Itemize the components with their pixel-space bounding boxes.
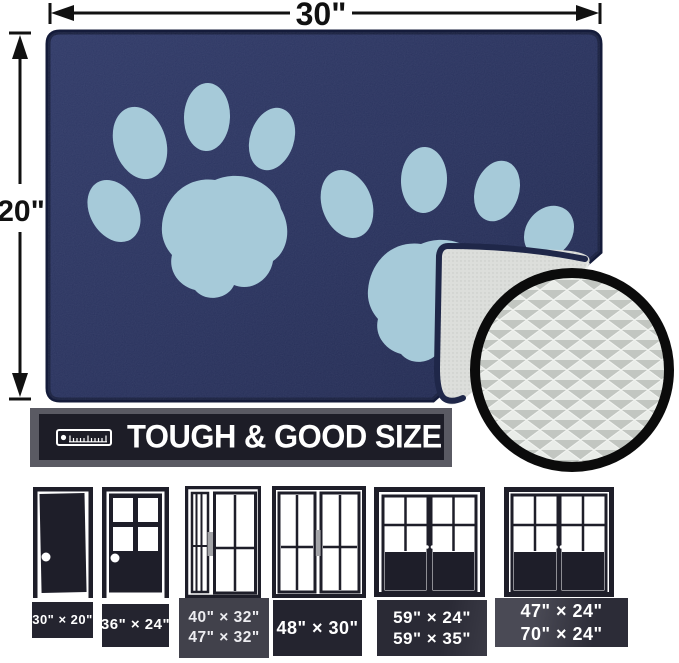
door-handle (208, 532, 214, 556)
size-line: 70" × 24" (520, 623, 602, 646)
door-knob (42, 553, 51, 562)
size-badge: 36" × 24" (102, 604, 169, 647)
size-line: 40" × 32" (188, 608, 259, 628)
sidelight-door-icon (185, 486, 261, 598)
arrowhead-left-icon (51, 5, 74, 21)
banner-title: TOUGH & GOOD SIZE (127, 418, 442, 456)
door-knob (425, 545, 429, 549)
width-label: 30" (296, 0, 347, 32)
product-size-infographic: 30" 20" (0, 0, 679, 663)
ruler-icon (56, 429, 112, 446)
size-line: 59" × 24" (393, 607, 471, 628)
backing-texture-magnifier (475, 273, 669, 467)
solid-door-icon (33, 487, 93, 598)
size-badge: 40" × 32" 47" × 32" (179, 598, 269, 658)
size-line: 30" × 20" (32, 612, 93, 628)
double-french-door-icon (374, 487, 485, 597)
size-badge: 30" × 20" (32, 602, 93, 638)
arrowhead-down-icon (12, 373, 28, 397)
size-line: 47" × 32" (188, 628, 259, 648)
banner-panel: TOUGH & GOOD SIZE (39, 414, 444, 460)
double-glass-door-icon (272, 486, 366, 598)
door-knob (554, 545, 558, 549)
size-badge: 48" × 30" (273, 600, 362, 656)
banner: TOUGH & GOOD SIZE (30, 408, 452, 467)
size-line: 47" × 24" (520, 600, 602, 623)
door-knob (111, 554, 120, 563)
height-label: 20" (0, 195, 45, 228)
size-line: 48" × 30" (276, 617, 358, 640)
arrowhead-up-icon (12, 35, 28, 59)
size-line: 36" × 24" (101, 616, 170, 635)
arrowhead-right-icon (576, 5, 599, 21)
door-knob (560, 545, 564, 549)
door-handle (316, 530, 321, 556)
door-knob (431, 545, 435, 549)
size-badge: 59" × 24" 59" × 35" (377, 600, 487, 656)
wide-double-french-door-icon (504, 487, 614, 597)
half-glass-door-icon (102, 487, 169, 598)
size-line: 59" × 35" (393, 628, 471, 649)
size-badge: 47" × 24" 70" × 24" (495, 598, 628, 647)
